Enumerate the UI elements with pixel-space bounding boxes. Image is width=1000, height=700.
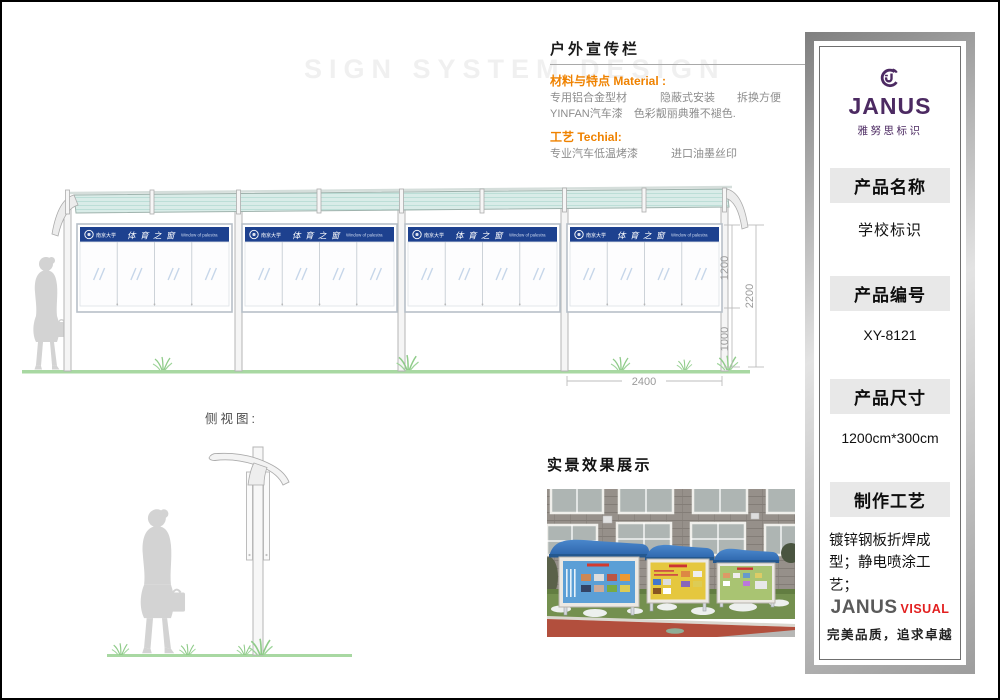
ground-line xyxy=(107,654,352,657)
ground-line xyxy=(22,370,750,374)
tech-line1: 专业汽车低温烤漆 进口油墨丝印 xyxy=(550,147,806,163)
product-size-value: 1200cm*300cm xyxy=(841,430,938,446)
elevation-drawing: 南京大学 体育之窗 Window of palestra xyxy=(22,182,782,397)
brand-name-cn: 雅努思标识 xyxy=(858,123,923,138)
title-underline xyxy=(550,64,806,65)
photo-ac-unit xyxy=(603,516,612,523)
craft-value: 镀锌钢板折焊成型；静电喷涂工艺； xyxy=(829,530,951,597)
section-header-product-size: 产品尺寸 xyxy=(830,379,950,414)
reference-photo xyxy=(547,489,795,637)
dim-bay-width: 2400 xyxy=(632,376,656,388)
photo-boards xyxy=(559,557,775,607)
janus-logo-icon xyxy=(859,67,921,89)
brand-name: JANUS xyxy=(849,93,932,120)
photo-section-label: 实景效果展示 xyxy=(547,454,652,475)
photo-ac-unit xyxy=(751,513,759,519)
side-view-drawing xyxy=(102,422,362,667)
photo-pavement-marking xyxy=(666,628,684,634)
dim-board-height: 1200 xyxy=(719,256,731,280)
dim-total-height: 2200 xyxy=(744,284,756,308)
footer-brand-name: JANUS xyxy=(831,597,898,618)
tech-label: 工艺 Techial: xyxy=(550,128,806,145)
dim-ground-clearance: 1000 xyxy=(719,327,731,351)
material-line2: YINFAN汽车漆 色彩靓丽典雅不褪色. xyxy=(550,107,806,123)
spec-info-block: 户外宣传栏 材料与特点 Material : 专用铝合金型材 隐蔽式安装 拆换方… xyxy=(550,38,806,163)
material-label: 材料与特点 Material : xyxy=(550,72,806,89)
product-spec-panel: JANUS 雅努思标识 产品名称 学校标识 产品编号 XY-8121 产品尺寸 … xyxy=(805,32,975,674)
section-header-product-code: 产品编号 xyxy=(830,276,950,311)
footer-tagline: 完美品质，追求卓越 xyxy=(827,624,953,643)
product-code-value: XY-8121 xyxy=(863,327,916,343)
section-header-product-name: 产品名称 xyxy=(830,168,950,203)
side-canopy xyxy=(209,453,289,485)
footer-brand-visual: VISUAL xyxy=(901,602,950,616)
section-header-craft: 制作工艺 xyxy=(830,482,950,517)
page-title: 户外宣传栏 xyxy=(550,38,806,59)
product-name-value: 学校标识 xyxy=(858,219,922,240)
sidebar-footer: JANUSVISUAL 完美品质，追求卓越 xyxy=(827,597,953,643)
design-sheet: SIGN SYSTEM DESIGN 户外宣传栏 材料与特点 Material … xyxy=(0,0,1000,700)
material-line1: 专用铝合金型材 隐蔽式安装 拆换方便 xyxy=(550,91,806,107)
